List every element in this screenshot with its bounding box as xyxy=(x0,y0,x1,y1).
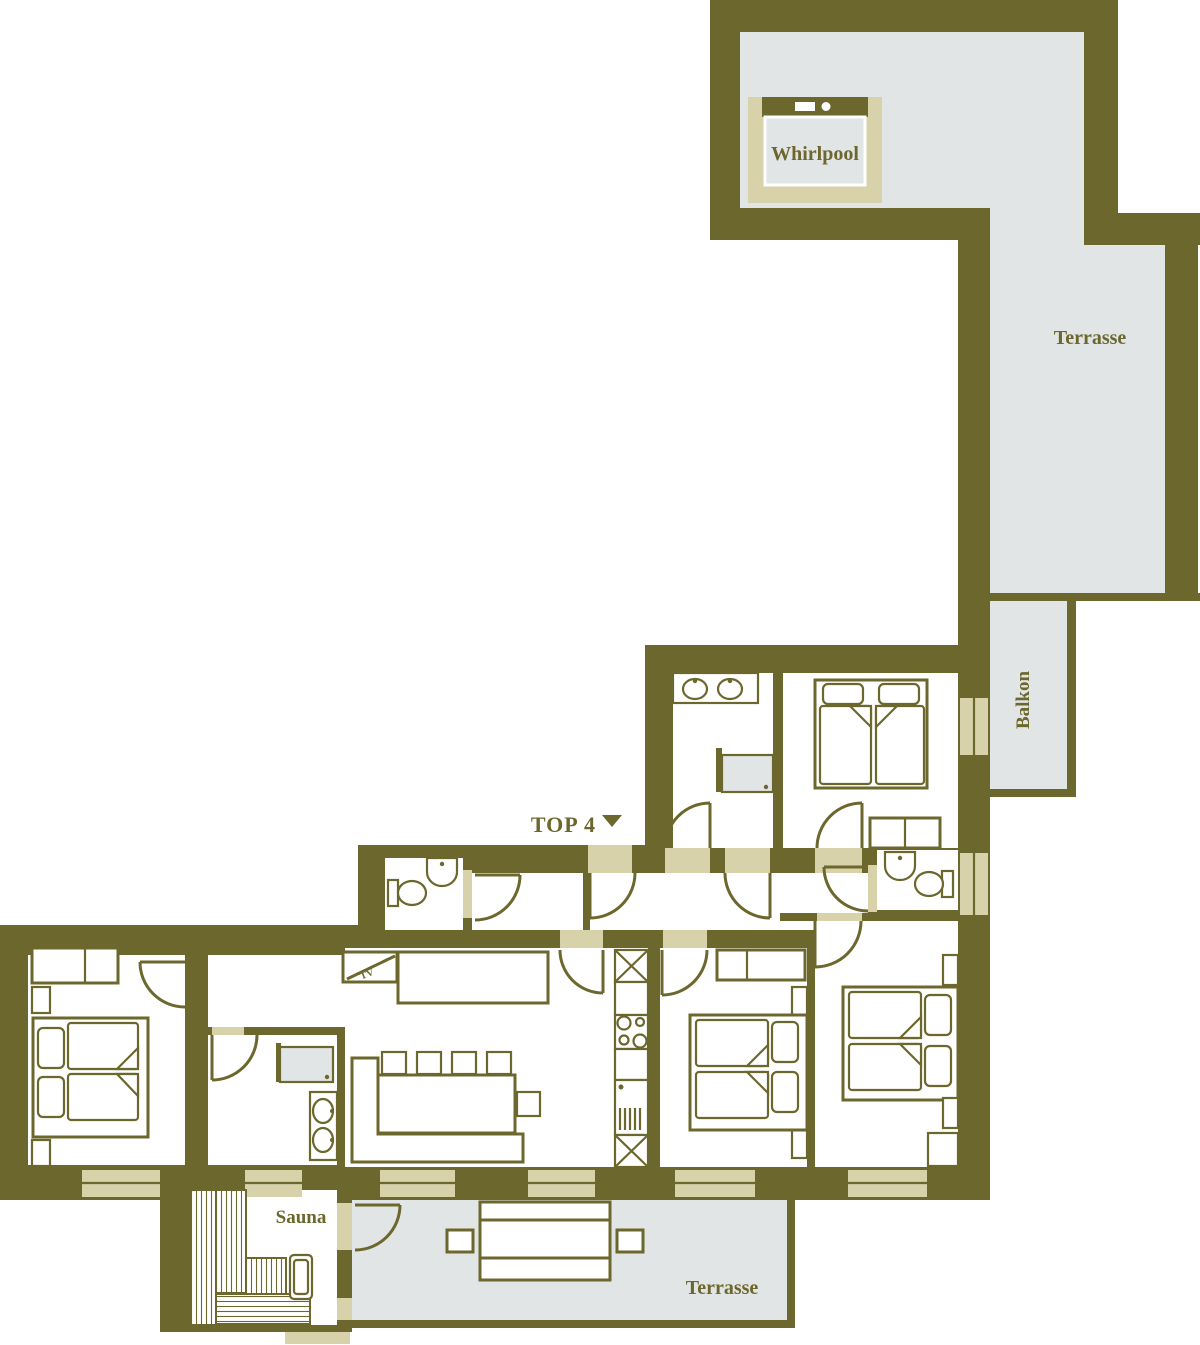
floorplan-page: Whirlpool Terrasse Balkon TOP 4 Sauna Te… xyxy=(0,0,1200,1345)
room-label-balcony: Balkon xyxy=(1013,671,1034,730)
unit-title-arrow-icon xyxy=(602,815,622,827)
kitchen-units xyxy=(615,950,648,1167)
room-label-whirlpool: Whirlpool xyxy=(771,143,859,165)
room-label-terrace-lower: Terrasse xyxy=(686,1277,759,1299)
upper-terrace-structure xyxy=(710,0,1200,601)
unit-title: TOP 4 xyxy=(531,812,596,837)
floorplan-svg: Whirlpool Terrasse Balkon TOP 4 Sauna Te… xyxy=(0,0,1200,1345)
room-label-sauna: Sauna xyxy=(276,1207,327,1228)
room-label-terrace-upper: Terrasse xyxy=(1054,327,1127,349)
